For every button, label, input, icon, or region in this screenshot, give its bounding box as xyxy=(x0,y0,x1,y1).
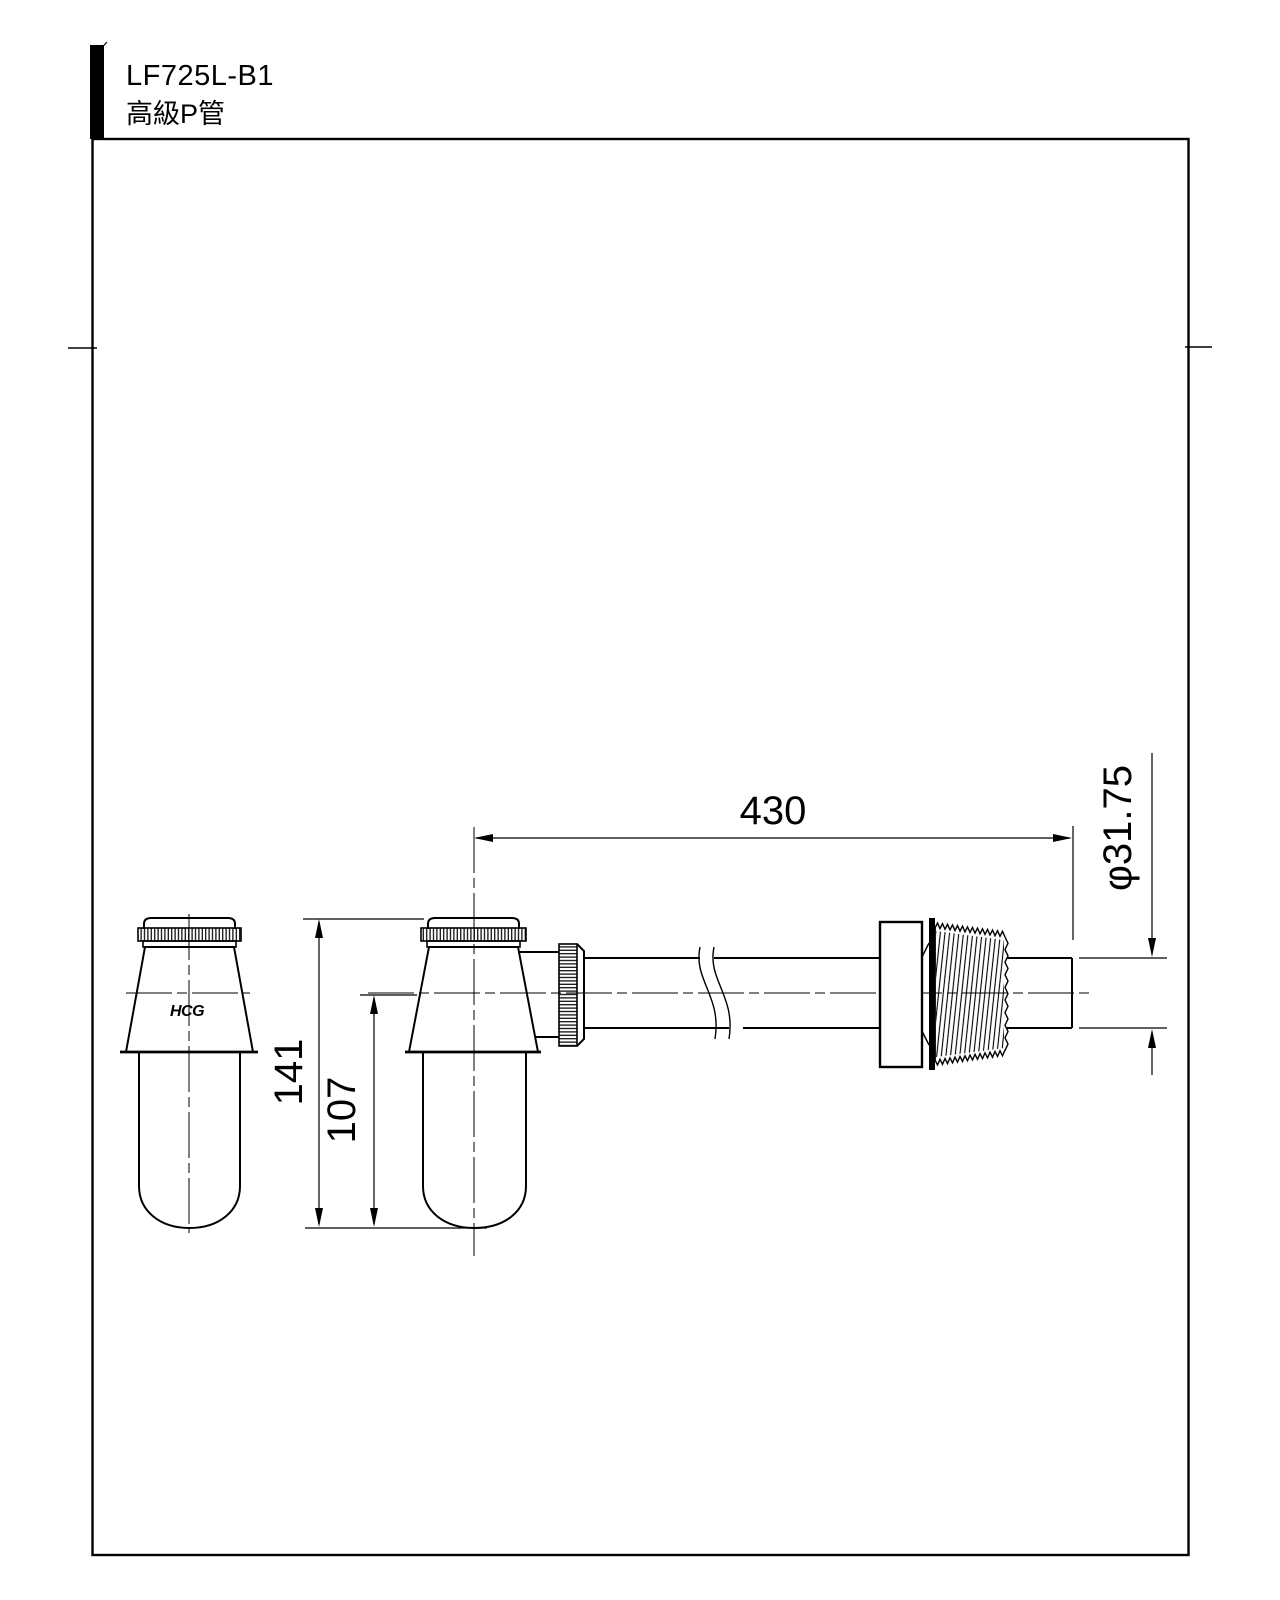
sheet-frame xyxy=(68,42,1212,1555)
dim-141-label: 141 xyxy=(267,1039,311,1106)
front-cap-knurl xyxy=(138,928,241,941)
front-view: HCG xyxy=(120,914,258,1233)
pipe-threads-end-crest xyxy=(1005,937,1008,1050)
dim-141-arrow-bottom xyxy=(315,1208,323,1227)
frame-border xyxy=(93,139,1189,1555)
product-name: 高級P管 xyxy=(126,99,225,129)
dim-dia-arrow-bottom xyxy=(1148,1029,1156,1048)
dim-141: 141 xyxy=(267,919,424,1227)
hcg-logo: HCG xyxy=(170,1003,204,1020)
dimensions: 430 141 107 φ31.75 xyxy=(267,753,1167,1228)
model-number: LF725L-B1 xyxy=(126,60,274,92)
dim-107: 107 xyxy=(320,995,417,1227)
compression-nut-knurl xyxy=(559,944,577,1046)
dim-dia-label: φ31.75 xyxy=(1096,765,1140,891)
dim-430-arrow-left xyxy=(474,834,493,842)
compression-nut-profile xyxy=(577,944,584,1046)
dim-107-arrow-bottom xyxy=(370,1208,378,1227)
dim-107-label: 107 xyxy=(320,1077,364,1144)
dim-141-arrow-top xyxy=(315,919,323,938)
dim-430: 430 xyxy=(474,789,1073,940)
drawing-sheet: LF725L-B1 高級P管 HCG xyxy=(0,0,1280,1600)
dim-107-arrow-top xyxy=(370,995,378,1014)
title-bar-block xyxy=(90,45,104,139)
dim-diameter: φ31.75 xyxy=(1079,753,1167,1075)
wall-flange-nut xyxy=(880,922,922,1067)
side-cap-knurl xyxy=(421,928,526,941)
dim-430-arrow-right xyxy=(1053,834,1072,842)
side-view xyxy=(368,827,1089,1256)
dim-430-label: 430 xyxy=(740,789,807,833)
technical-drawing: LF725L-B1 高級P管 HCG xyxy=(0,0,1280,1600)
pipe-threads-hatch xyxy=(936,931,1004,1057)
title-block: LF725L-B1 高級P管 xyxy=(126,60,274,129)
dim-dia-arrow-top xyxy=(1148,938,1156,957)
